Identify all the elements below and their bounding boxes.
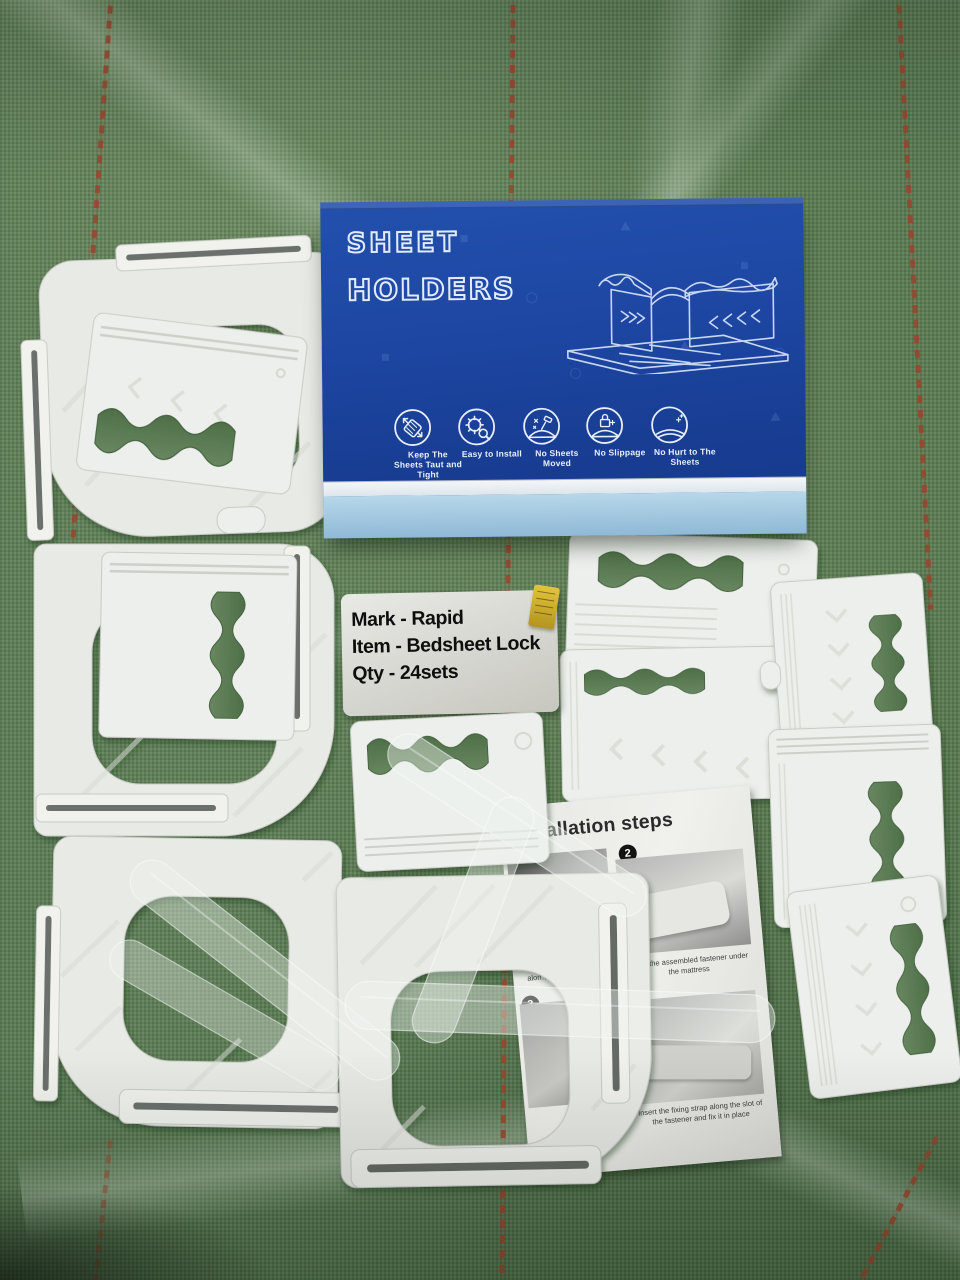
rail-clip bbox=[351, 1145, 602, 1187]
clear-strap bbox=[344, 981, 775, 1044]
product-photo: SHEET HOLDERS Keep The Sheets Taut and T… bbox=[0, 0, 960, 1280]
top-parts-layer bbox=[0, 0, 960, 1280]
